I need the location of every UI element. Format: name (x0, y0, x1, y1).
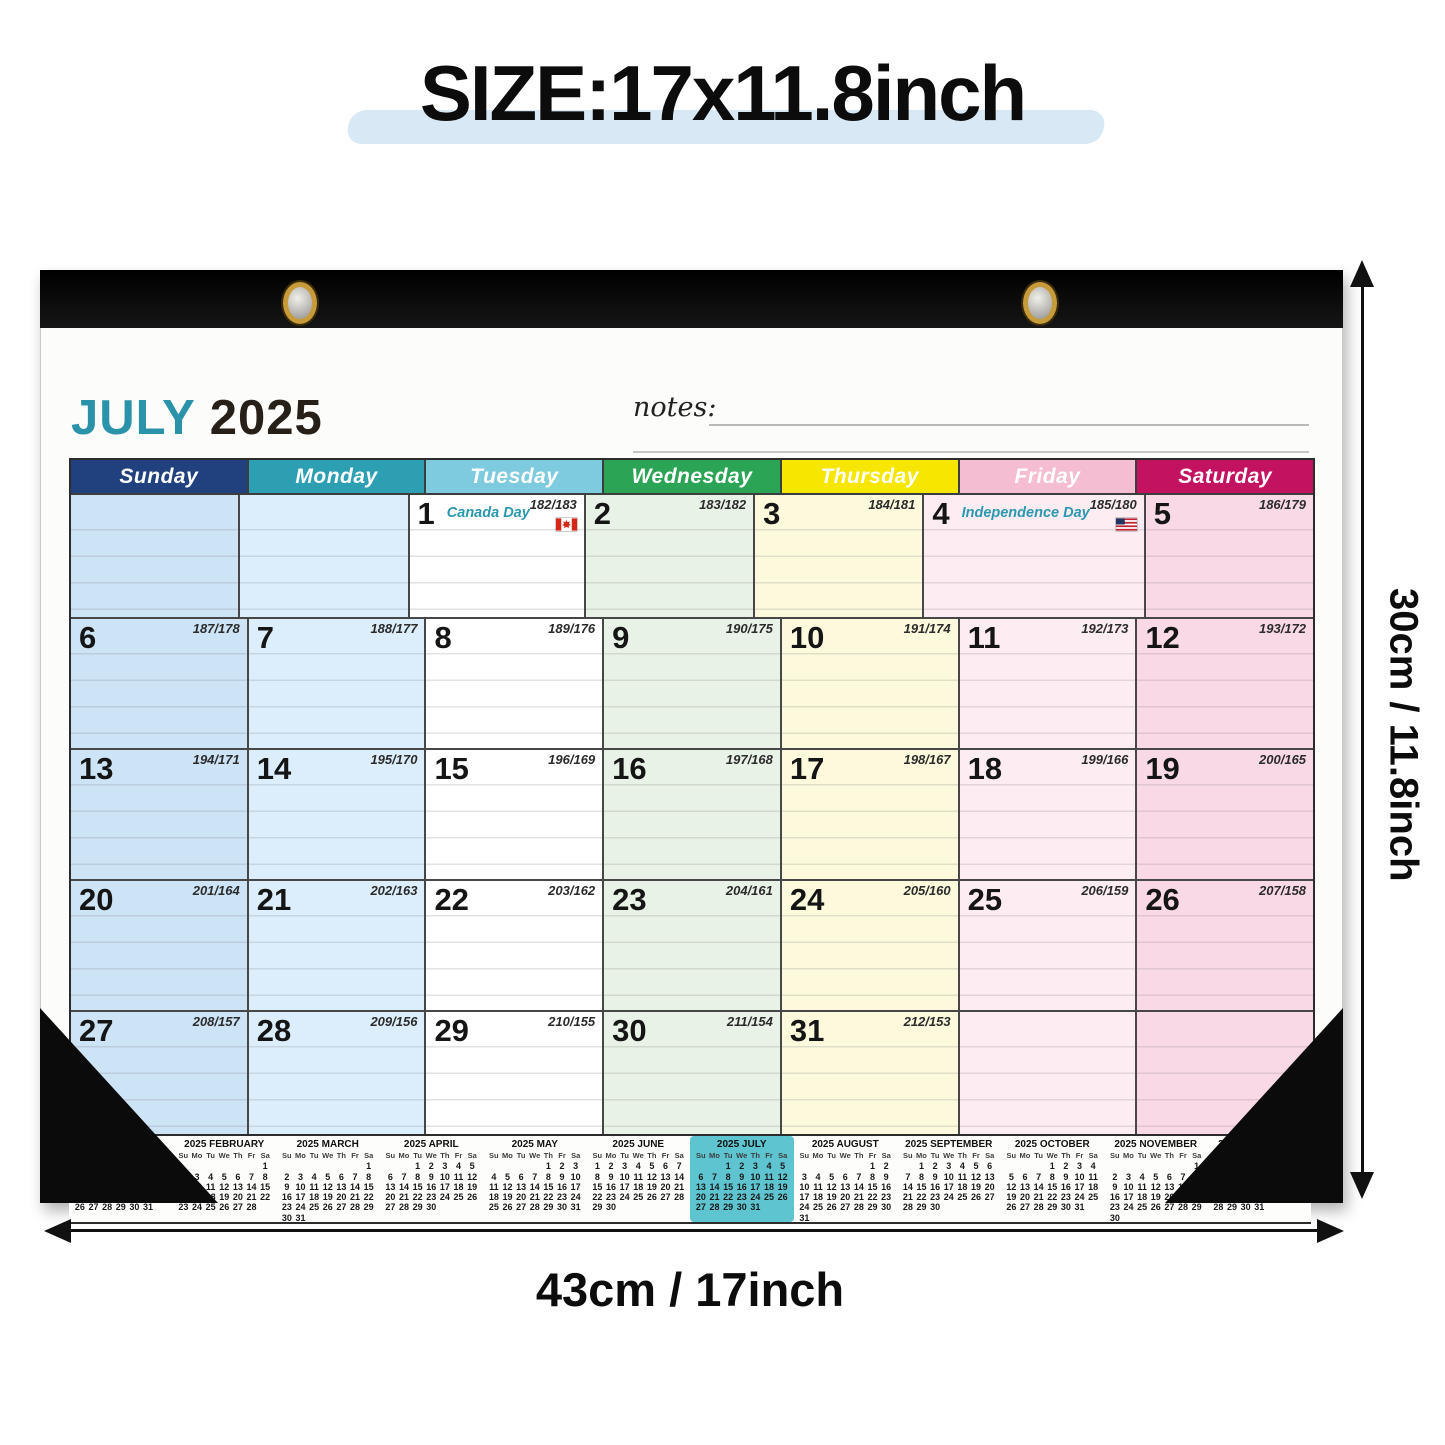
mini-day (762, 1202, 776, 1212)
mini-week-row: 13141516171819 (380, 1182, 484, 1192)
mini-day: 30 (735, 1202, 749, 1212)
mini-weekday: Sa (672, 1151, 686, 1161)
mini-day: 29 (114, 1202, 128, 1212)
mini-week-row: 12 (794, 1161, 898, 1171)
day-cell: 26207/158 (1135, 881, 1313, 1010)
mini-day: 2 (928, 1161, 942, 1171)
mini-day (307, 1161, 321, 1171)
day-cell: 20201/164 (71, 881, 247, 1010)
mini-weekday: Sa (879, 1151, 893, 1161)
weekday-label: Saturday (1178, 465, 1272, 489)
day-cell: 14195/170 (247, 750, 425, 879)
mini-day (825, 1161, 839, 1171)
mini-day: 4 (811, 1172, 825, 1182)
day-cell: 6187/178 (71, 619, 247, 748)
mini-day: 12 (217, 1182, 231, 1192)
day-cell: 16197/168 (602, 750, 780, 879)
mini-day: 5 (465, 1161, 479, 1171)
mini-week-row: 1 (173, 1161, 277, 1171)
mini-weekday-header: SuMoTuWeThFrSa (897, 1151, 1001, 1161)
mini-day: 10 (942, 1172, 956, 1182)
mini-weekday: Su (1005, 1151, 1019, 1161)
mini-day: 1 (411, 1161, 425, 1171)
mini-weekday: We (1045, 1151, 1059, 1161)
mini-day: 11 (307, 1182, 321, 1192)
mini-day: 20 (335, 1192, 349, 1202)
mini-weekday-header: SuMoTuWeThFrSa (690, 1151, 794, 1161)
day-number: 23 (612, 884, 646, 915)
mini-day (307, 1213, 321, 1223)
day-number: 30 (612, 1015, 646, 1046)
mini-day: 18 (307, 1192, 321, 1202)
mini-day: 23 (555, 1192, 569, 1202)
mini-day: 10 (1073, 1172, 1087, 1182)
mini-day (1176, 1161, 1190, 1171)
mini-day: 17 (1073, 1182, 1087, 1192)
mini-day: 20 (659, 1182, 673, 1192)
day-cell: 17198/167 (780, 750, 958, 879)
mini-day: 7 (528, 1172, 542, 1182)
day-of-year: 183/182 (699, 498, 746, 512)
mini-weekday: Mo (397, 1151, 411, 1161)
mini-day: 10 (294, 1182, 308, 1192)
day-number: 18 (968, 753, 1002, 784)
mini-day: 7 (672, 1161, 686, 1171)
mini-weekday-header: SuMoTuWeThFrSa (173, 1151, 277, 1161)
mini-day (1293, 1202, 1307, 1212)
mini-day (1086, 1202, 1100, 1212)
mini-weekday-header: SuMoTuWeThFrSa (483, 1151, 587, 1161)
mini-week-row: 567891011 (1001, 1172, 1105, 1182)
mini-day: 14 (852, 1182, 866, 1192)
mini-day: 16 (555, 1182, 569, 1192)
mini-month: 2025 MARCHSuMoTuWeThFrSa1234567891011121… (276, 1136, 380, 1222)
mini-day: 13 (384, 1182, 398, 1192)
mini-day: 22 (866, 1192, 880, 1202)
day-of-year: 209/156 (370, 1015, 417, 1029)
mini-day: 6 (838, 1172, 852, 1182)
mini-day: 16 (928, 1182, 942, 1192)
mini-week-row: 891011121314 (587, 1172, 691, 1182)
mini-weekday: Mo (294, 1151, 308, 1161)
day-cell: 3184/181 (753, 495, 922, 617)
week-row: 20201/16421202/16322203/16223204/1612420… (71, 879, 1313, 1010)
mini-weekday: Su (798, 1151, 812, 1161)
mini-day (501, 1161, 515, 1171)
day-of-year: 191/174 (904, 622, 951, 636)
mini-week-row: 9101112131415 (276, 1182, 380, 1192)
mini-day: 28 (901, 1202, 915, 1212)
month-label: JULY (71, 391, 196, 445)
day-number: 4 (932, 498, 949, 529)
mini-day: 30 (1059, 1202, 1073, 1212)
mini-week-row: 20212223242526 (380, 1192, 484, 1202)
mini-day: 13 (514, 1182, 528, 1192)
day-of-year: 192/173 (1081, 622, 1128, 636)
mini-day: 25 (762, 1192, 776, 1202)
mini-day: 28 (348, 1202, 362, 1212)
mini-day: 26 (73, 1202, 87, 1212)
mini-day: 27 (87, 1202, 101, 1212)
mini-day: 18 (762, 1182, 776, 1192)
mini-weekday: Fr (452, 1151, 466, 1161)
mini-day: 19 (645, 1182, 659, 1192)
mini-week-row: 12131415161718 (1001, 1182, 1105, 1192)
width-dimension-line (66, 1229, 1319, 1232)
mini-day: 27 (384, 1202, 398, 1212)
mini-day: 28 (672, 1192, 686, 1202)
width-dimension-label: 43cm / 17inch (240, 1262, 1140, 1317)
mini-weekday: Tu (411, 1151, 425, 1161)
day-of-year: 201/164 (193, 884, 240, 898)
weekday-label: Monday (295, 465, 377, 489)
mini-day: 19 (1005, 1192, 1019, 1202)
mini-day: 24 (749, 1192, 763, 1202)
mini-day: 26 (321, 1202, 335, 1212)
mini-day: 4 (956, 1161, 970, 1171)
mini-day: 18 (452, 1182, 466, 1192)
mini-day: 28 (708, 1202, 722, 1212)
mini-day: 9 (555, 1172, 569, 1182)
mini-month-title: 2025 JULY (690, 1138, 794, 1151)
arrow-down-icon (1350, 1172, 1374, 1199)
day-cell: 30211/154 (602, 1012, 780, 1141)
mini-day: 11 (762, 1172, 776, 1182)
mini-weekday-header: SuMoTuWeThFrSa (1001, 1151, 1105, 1161)
day-of-year: 205/160 (904, 884, 951, 898)
mini-day: 20 (983, 1182, 997, 1192)
mini-day: 31 (749, 1202, 763, 1212)
mini-weekday: Fr (1073, 1151, 1087, 1161)
mini-day: 12 (1005, 1182, 1019, 1192)
mini-day (335, 1213, 349, 1223)
day-number: 10 (790, 622, 824, 653)
mini-day: 9 (735, 1172, 749, 1182)
mini-day (1163, 1161, 1177, 1171)
mini-weekday: Su (487, 1151, 501, 1161)
mini-day: 28 (1176, 1202, 1190, 1212)
notes-line (633, 451, 1309, 453)
mini-day: 23 (604, 1192, 618, 1202)
mini-day: 23 (928, 1192, 942, 1202)
mini-day (811, 1213, 825, 1223)
mini-day: 12 (776, 1172, 790, 1182)
mini-week-row: 18192021222324 (483, 1192, 587, 1202)
mini-day: 31 (141, 1202, 155, 1212)
mini-day (1176, 1213, 1190, 1223)
day-number: 1 (418, 498, 435, 529)
mini-day: 13 (335, 1182, 349, 1192)
mini-day: 29 (1190, 1202, 1204, 1212)
mini-day: 28 (528, 1202, 542, 1212)
mini-weekday: Sa (569, 1151, 583, 1161)
mini-day: 14 (397, 1182, 411, 1192)
weekday-header-cell: Friday (958, 460, 1136, 493)
mini-weekday: Th (852, 1151, 866, 1161)
mini-day: 18 (811, 1192, 825, 1202)
canada-flag-icon (556, 518, 577, 531)
mini-day: 16 (424, 1182, 438, 1192)
mini-weekday: Th (335, 1151, 349, 1161)
mini-day: 27 (983, 1192, 997, 1202)
mini-weekday: We (838, 1151, 852, 1161)
mini-day (776, 1202, 790, 1212)
mini-week-row: 27282930 (380, 1202, 484, 1212)
mini-week-row: 3031 (276, 1213, 380, 1223)
mini-week-row: 6789101112 (380, 1172, 484, 1182)
mini-day: 19 (1149, 1192, 1163, 1202)
mini-day: 5 (501, 1172, 515, 1182)
day-number: 17 (790, 753, 824, 784)
mini-day (362, 1213, 376, 1223)
week-row: 1Canada Day182/1832183/1823184/1814Indep… (71, 495, 1313, 617)
day-of-year: 199/166 (1081, 753, 1128, 767)
mini-day (204, 1161, 218, 1171)
day-of-year: 193/172 (1259, 622, 1306, 636)
day-cell: 13194/171 (71, 750, 247, 879)
mini-weekday: Th (231, 1151, 245, 1161)
day-of-year: 196/169 (548, 753, 595, 767)
mini-day: 26 (217, 1202, 231, 1212)
mini-day: 23 (735, 1192, 749, 1202)
mini-day (514, 1161, 528, 1171)
mini-day: 18 (631, 1182, 645, 1192)
day-of-year: 182/183 (530, 498, 577, 512)
mini-day: 19 (217, 1192, 231, 1202)
holiday-label: Canada Day (447, 505, 530, 521)
mini-week-row: 3456789 (794, 1172, 898, 1182)
mini-month-title: 2025 SEPTEMBER (897, 1138, 1001, 1151)
day-cell: 31212/153 (780, 1012, 958, 1141)
mini-day (901, 1161, 915, 1171)
day-number: 19 (1145, 753, 1179, 784)
mini-week-row: 1 (1104, 1161, 1208, 1171)
mini-day: 9 (424, 1172, 438, 1182)
day-number: 12 (1145, 622, 1179, 653)
mini-day: 6 (1163, 1172, 1177, 1182)
mini-day: 20 (514, 1192, 528, 1202)
mini-day: 13 (1163, 1182, 1177, 1192)
mini-day: 10 (1122, 1182, 1136, 1192)
mini-day: 17 (798, 1192, 812, 1202)
mini-week-row: 30 (1104, 1213, 1208, 1223)
day-number: 27 (79, 1015, 113, 1046)
mini-week-row: 1234567 (587, 1161, 691, 1171)
mini-week-row: 23242526272829 (276, 1202, 380, 1212)
mini-day: 1 (258, 1161, 272, 1171)
mini-day: 11 (452, 1172, 466, 1182)
day-cell: 8189/176 (424, 619, 602, 748)
mini-weekday: Mo (1122, 1151, 1136, 1161)
mini-weekday-header: SuMoTuWeThFrSa (587, 1151, 691, 1161)
mini-week-row: 282930 (897, 1202, 1001, 1212)
day-cell: 22203/162 (424, 881, 602, 1010)
mini-day: 29 (1225, 1202, 1239, 1212)
day-number: 7 (257, 622, 274, 653)
mini-day: 27 (1163, 1202, 1177, 1212)
day-cell: 29210/155 (424, 1012, 602, 1141)
mini-weekday: Mo (190, 1151, 204, 1161)
mini-day: 9 (928, 1172, 942, 1182)
mini-day: 31 (798, 1213, 812, 1223)
mini-month: 2025 JUNESuMoTuWeThFrSa12345678910111213… (587, 1136, 691, 1222)
day-cell: 10191/174 (780, 619, 958, 748)
mini-day (438, 1202, 452, 1212)
grommet-icon (1023, 282, 1057, 324)
mini-day: 23 (280, 1202, 294, 1212)
mini-week-row: 15161718192021 (587, 1182, 691, 1192)
mini-day: 28 (100, 1202, 114, 1212)
mini-week-row: 17181920212223 (794, 1192, 898, 1202)
mini-day: 26 (969, 1192, 983, 1202)
mini-day: 30 (1108, 1213, 1122, 1223)
mini-week-row: 2728293031 (690, 1202, 794, 1212)
height-dimension-label: 30cm / 11.8inch (1374, 270, 1432, 1200)
mini-day: 15 (591, 1182, 605, 1192)
mini-month-title: 2025 NOVEMBER (1104, 1138, 1208, 1151)
mini-day: 28 (397, 1202, 411, 1212)
mini-day: 15 (362, 1182, 376, 1192)
mini-day: 2 (1059, 1161, 1073, 1171)
mini-weekday: We (217, 1151, 231, 1161)
mini-day: 3 (1122, 1172, 1136, 1182)
mini-day: 11 (1135, 1182, 1149, 1192)
mini-day: 17 (749, 1182, 763, 1192)
day-number: 15 (434, 753, 468, 784)
mini-day (217, 1161, 231, 1171)
weekday-header-cell: Thursday (780, 460, 958, 493)
mini-day: 21 (1032, 1192, 1046, 1202)
mini-day: 6 (384, 1172, 398, 1182)
day-of-year: 197/168 (726, 753, 773, 767)
mini-day: 13 (1018, 1182, 1032, 1192)
mini-day: 11 (811, 1182, 825, 1192)
mini-day (672, 1202, 686, 1212)
mini-week-row: 78910111213 (897, 1172, 1001, 1182)
mini-weekday: Mo (604, 1151, 618, 1161)
day-of-year: 190/175 (726, 622, 773, 636)
day-number: 2 (594, 498, 611, 529)
weekday-label: Friday (1014, 465, 1080, 489)
mini-day: 30 (128, 1202, 142, 1212)
day-of-year: 188/177 (370, 622, 417, 636)
mini-day: 12 (969, 1172, 983, 1182)
mini-day: 23 (1108, 1202, 1122, 1212)
mini-week-row: 25262728293031 (483, 1202, 587, 1212)
mini-week-row: 232425262728 (173, 1202, 277, 1212)
mini-day: 13 (231, 1182, 245, 1192)
mini-day: 20 (694, 1192, 708, 1202)
month-title: JULY2025 (71, 390, 323, 446)
mini-day: 5 (825, 1172, 839, 1182)
day-cell: 12193/172 (1135, 619, 1313, 748)
mini-month-title: 2025 MARCH (276, 1138, 380, 1151)
mini-day: 14 (708, 1182, 722, 1192)
mini-weekday: We (942, 1151, 956, 1161)
mini-day: 25 (307, 1202, 321, 1212)
mini-day: 8 (362, 1172, 376, 1182)
mini-day (1018, 1161, 1032, 1171)
mini-week-row: 20212223242526 (690, 1192, 794, 1202)
mini-month: 2025 MAYSuMoTuWeThFrSa123456789101112131… (483, 1136, 587, 1222)
mini-day: 29 (915, 1202, 929, 1212)
mini-day: 25 (452, 1192, 466, 1202)
mini-weekday: Th (749, 1151, 763, 1161)
mini-day (956, 1202, 970, 1212)
mini-weekday: Fr (1176, 1151, 1190, 1161)
mini-day (294, 1161, 308, 1171)
day-cell: 28209/156 (247, 1012, 425, 1141)
mini-day (852, 1161, 866, 1171)
mini-day: 3 (749, 1161, 763, 1171)
mini-day: 1 (721, 1161, 735, 1171)
mini-weekday: Th (645, 1151, 659, 1161)
day-number: 8 (434, 622, 451, 653)
mini-day: 18 (956, 1182, 970, 1192)
mini-day (1149, 1213, 1163, 1223)
us-flag-icon (1116, 518, 1137, 531)
mini-day: 12 (825, 1182, 839, 1192)
mini-weekday: Fr (348, 1151, 362, 1161)
mini-day: 28 (1212, 1202, 1226, 1212)
day-cell (238, 495, 407, 617)
calendar-grid-body: 1Canada Day182/1832183/1823184/1814Indep… (71, 495, 1313, 1141)
mini-day: 21 (672, 1182, 686, 1192)
day-of-year: 194/171 (193, 753, 240, 767)
mini-day: 8 (591, 1172, 605, 1182)
mini-weekday: Fr (555, 1151, 569, 1161)
mini-day (1190, 1213, 1204, 1223)
mini-day: 6 (514, 1172, 528, 1182)
mini-day (384, 1161, 398, 1171)
day-of-year: 204/161 (726, 884, 773, 898)
mini-weekday: Tu (618, 1151, 632, 1161)
mini-day: 23 (424, 1192, 438, 1202)
mini-day: 12 (501, 1182, 515, 1192)
mini-week-row: 10111213141516 (794, 1182, 898, 1192)
mini-week-row: 2930 (587, 1202, 691, 1212)
mini-day: 20 (231, 1192, 245, 1202)
mini-day (838, 1213, 852, 1223)
mini-weekday: Mo (915, 1151, 929, 1161)
day-of-year: 187/178 (193, 622, 240, 636)
mini-weekday: Th (1059, 1151, 1073, 1161)
mini-month: 2025 AUGUSTSuMoTuWeThFrSa123456789101112… (794, 1136, 898, 1222)
mini-day: 25 (1135, 1202, 1149, 1212)
mini-day: 10 (749, 1172, 763, 1182)
mini-day: 5 (321, 1172, 335, 1182)
mini-day: 26 (501, 1202, 515, 1212)
mini-day: 29 (411, 1202, 425, 1212)
mini-weekday: Sa (1190, 1151, 1204, 1161)
mini-day: 27 (659, 1192, 673, 1202)
mini-weekday-header: SuMoTuWeThFrSa (794, 1151, 898, 1161)
weekday-label: Wednesday (632, 465, 753, 489)
mini-day: 7 (397, 1172, 411, 1182)
mini-day (659, 1202, 673, 1212)
mini-day: 2 (1108, 1172, 1122, 1182)
mini-weekday: We (321, 1151, 335, 1161)
mini-day (942, 1202, 956, 1212)
day-cell: 24205/160 (780, 881, 958, 1010)
mini-day: 5 (645, 1161, 659, 1171)
day-cell (71, 495, 238, 617)
day-cell: 15196/169 (424, 750, 602, 879)
mini-day: 3 (438, 1161, 452, 1171)
mini-day: 4 (1086, 1161, 1100, 1171)
mini-week-row: 12345 (690, 1161, 794, 1171)
calendar-page: JULY2025 notes: SundayMondayTuesdayWedne… (40, 328, 1343, 1203)
